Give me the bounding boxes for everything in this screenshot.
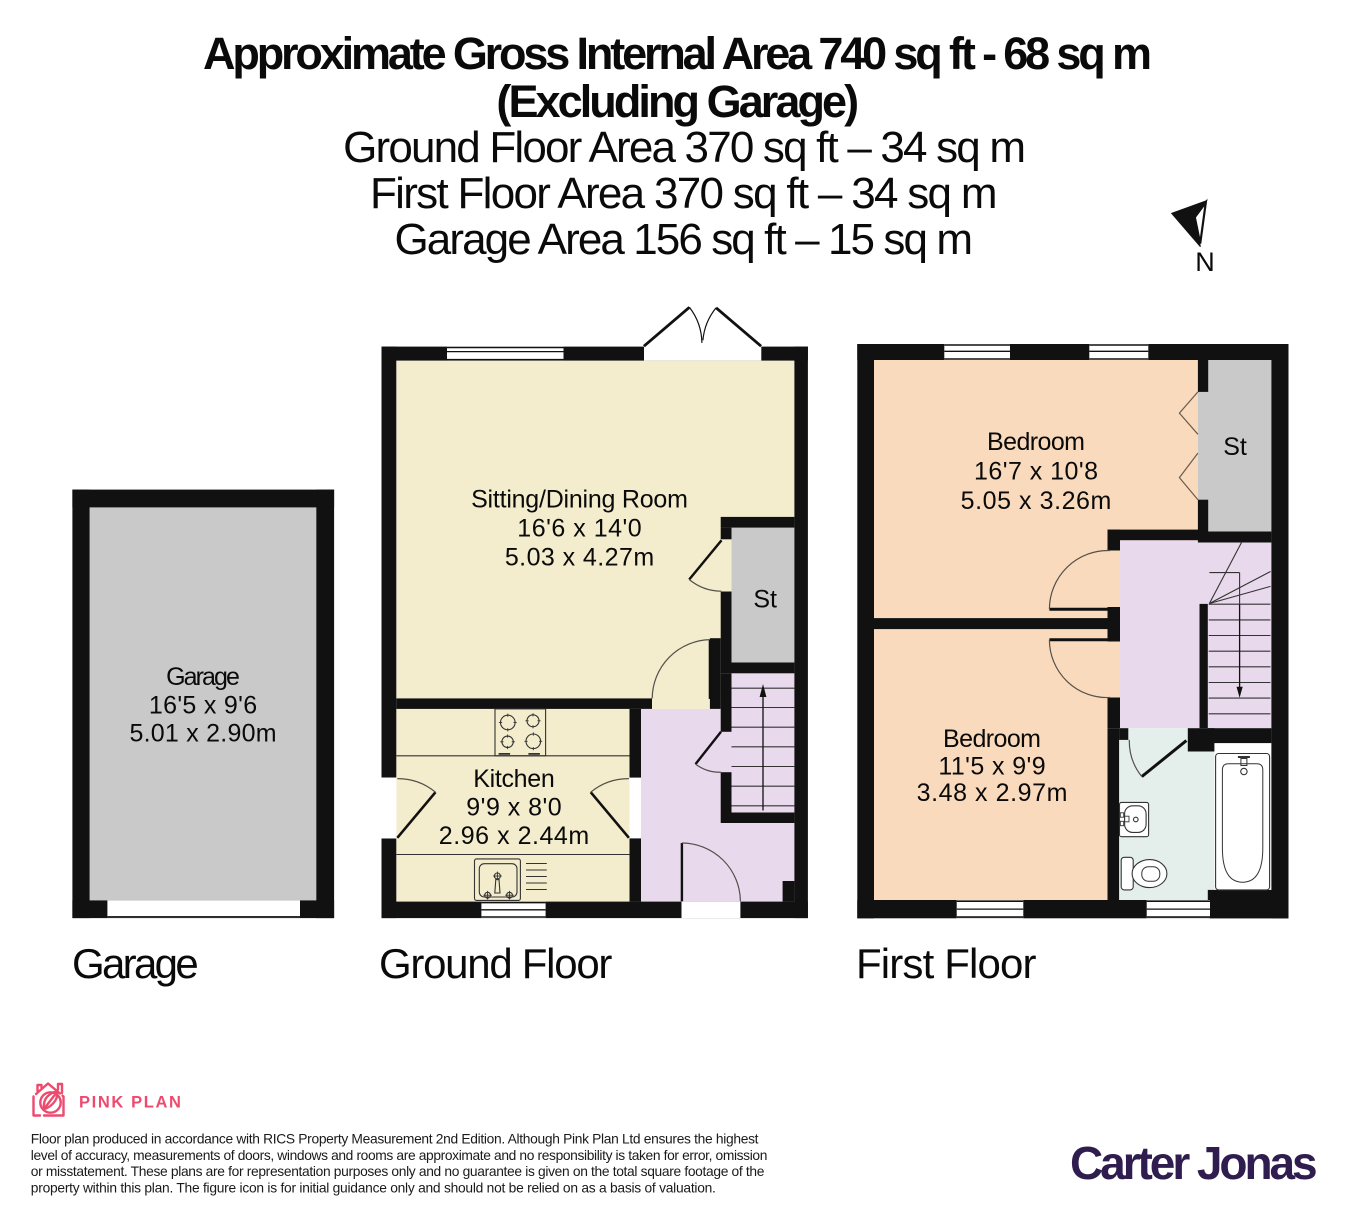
svg-text:PINK PLAN: PINK PLAN [79, 1094, 181, 1112]
svg-text:Kitchen: Kitchen [473, 765, 555, 793]
svg-text:5.05 x 3.26m: 5.05 x 3.26m [961, 487, 1112, 515]
svg-text:Sitting/Dining Room: Sitting/Dining Room [471, 486, 688, 514]
svg-text:First Floor Area 370 sq ft – 3: First Floor Area 370 sq ft – 34 sq m [370, 169, 998, 218]
svg-text:Bedroom: Bedroom [943, 725, 1041, 753]
svg-text:level of accuracy, measurement: level of accuracy, measurements of doors… [31, 1148, 768, 1163]
svg-text:5.03 x 4.27m: 5.03 x 4.27m [505, 544, 654, 572]
svg-text:Carter Jonas: Carter Jonas [1070, 1137, 1318, 1189]
svg-text:Garage: Garage [72, 940, 199, 987]
svg-text:Bedroom: Bedroom [987, 428, 1085, 456]
svg-text:2.96 x 2.44m: 2.96 x 2.44m [439, 822, 589, 850]
svg-text:Ground Floor: Ground Floor [379, 940, 612, 987]
svg-text:St: St [753, 586, 777, 614]
svg-text:Ground Floor Area 370 sq ft –: Ground Floor Area 370 sq ft – 34 sq m [343, 123, 1026, 172]
svg-text:3.48 x 2.97m: 3.48 x 2.97m [917, 779, 1068, 807]
svg-text:property within this plan. The: property within this plan. The figure ic… [31, 1180, 716, 1195]
svg-text:St: St [1223, 433, 1247, 461]
svg-text:5.01 x 2.90m: 5.01 x 2.90m [129, 720, 276, 748]
svg-text:(Excluding Garage): (Excluding Garage) [496, 76, 859, 127]
svg-text:9'9 x 8'0: 9'9 x 8'0 [466, 794, 561, 822]
svg-text:16'5 x 9'6: 16'5 x 9'6 [149, 692, 257, 720]
svg-text:16'6 x 14'0: 16'6 x 14'0 [517, 515, 641, 543]
svg-text:N: N [1195, 247, 1215, 277]
svg-text:Garage: Garage [166, 663, 240, 691]
svg-text:Floor plan produced in accorda: Floor plan produced in accordance with R… [31, 1132, 759, 1147]
svg-text:16'7 x 10'8: 16'7 x 10'8 [974, 458, 1098, 486]
svg-text:First Floor: First Floor [856, 940, 1037, 987]
svg-text:11'5 x 9'9: 11'5 x 9'9 [938, 753, 1045, 781]
svg-text:Approximate Gross Internal Are: Approximate Gross Internal Area 740 sq f… [203, 28, 1152, 79]
svg-text:Garage Area 156 sq ft – 15 sq: Garage Area 156 sq ft – 15 sq m [395, 215, 974, 264]
svg-text:or misstatement. These plans a: or misstatement. These plans are for rep… [31, 1164, 765, 1179]
